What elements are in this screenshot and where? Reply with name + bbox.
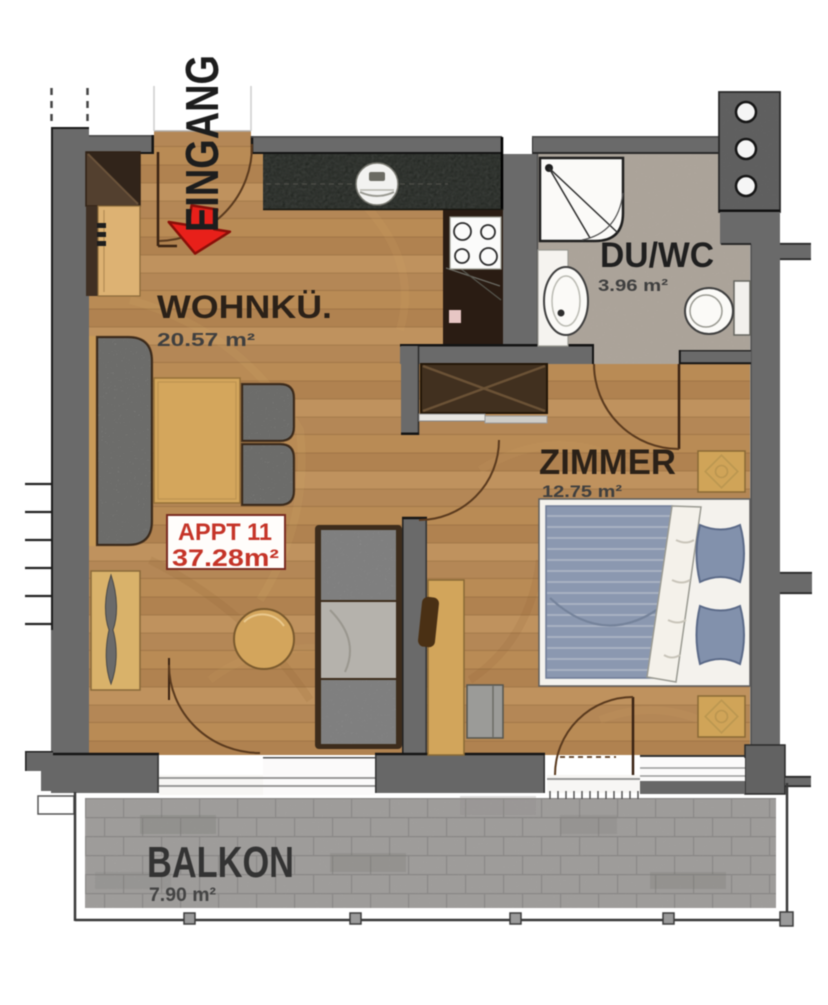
- svg-text:37.28m²: 37.28m²: [172, 545, 279, 572]
- svg-text:12.75 m²: 12.75 m²: [542, 482, 622, 501]
- svg-text:BALKON: BALKON: [147, 838, 294, 887]
- svg-text:3.96 m²: 3.96 m²: [598, 276, 668, 295]
- svg-text:7.90 m²: 7.90 m²: [149, 885, 216, 906]
- svg-text:EINGANG: EINGANG: [176, 55, 228, 232]
- svg-text:20.57 m²: 20.57 m²: [157, 330, 255, 350]
- svg-text:ZIMMER: ZIMMER: [539, 443, 676, 482]
- svg-text:APPT 11: APPT 11: [178, 519, 272, 546]
- svg-text:DU/WC: DU/WC: [600, 236, 714, 275]
- svg-text:WOHNKÜ.: WOHNKÜ.: [157, 289, 332, 325]
